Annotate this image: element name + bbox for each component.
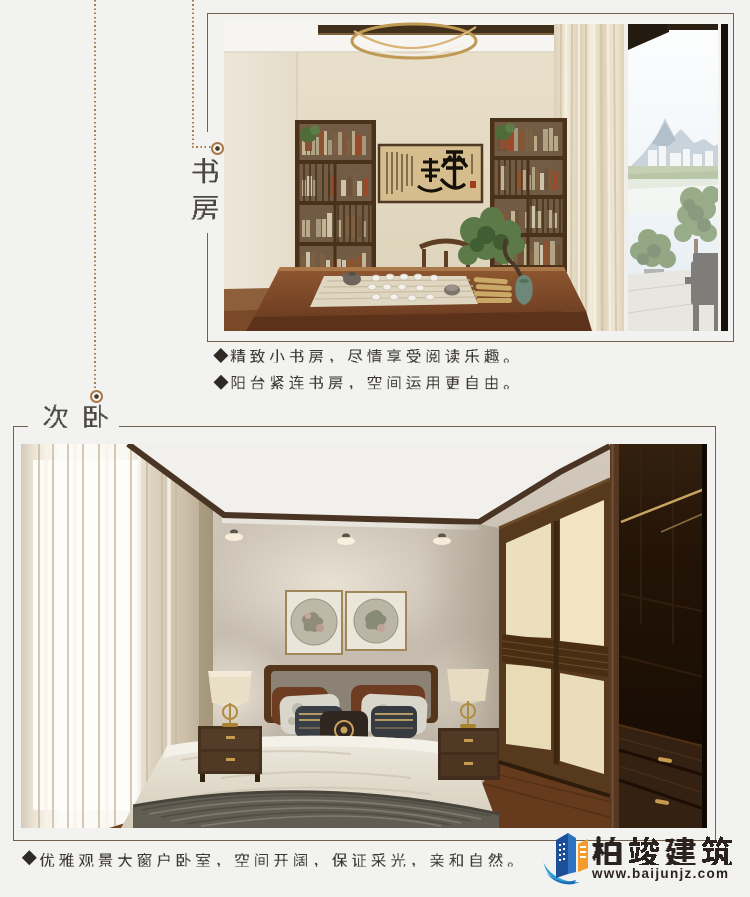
svg-text:www.baijunjz.com: www.baijunjz.com [591,866,729,881]
